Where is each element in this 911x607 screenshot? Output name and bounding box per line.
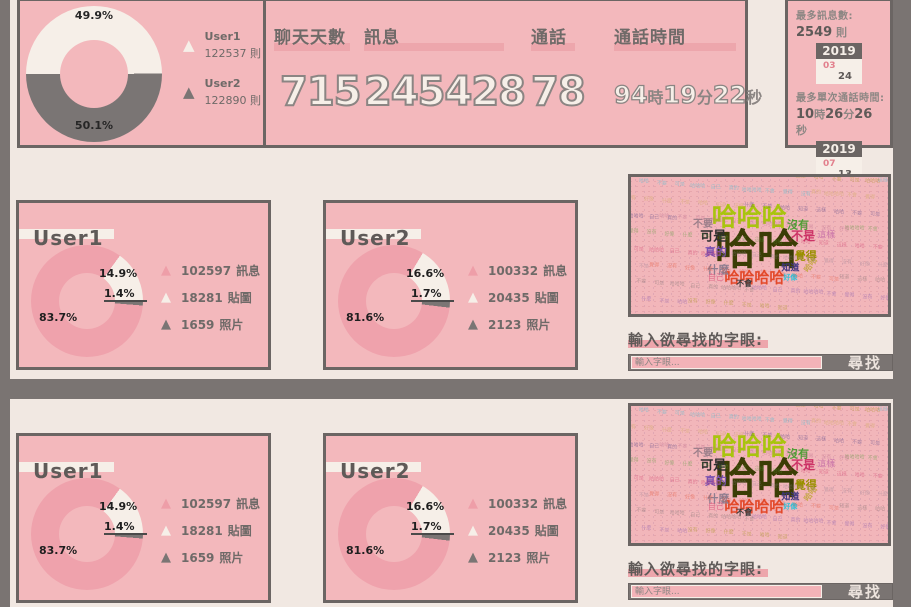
pink-triangle-icon: ▲ [161, 264, 171, 277]
legend-item-photos: ▲ 1659 照片 [161, 311, 260, 338]
gray-triangle-icon: ▲ [468, 318, 478, 331]
user1-card-title: User1 [33, 226, 104, 250]
gray-triangle-icon: ▲ [183, 85, 195, 100]
overall-messages-donut-chart: 49.9% 50.1% [26, 6, 162, 142]
max-messages-date-calendar: 2019 03 24 [816, 43, 862, 84]
search-input[interactable] [631, 585, 822, 598]
user1-photo-percent: 1.4% [104, 520, 147, 535]
user2-photo-percent: 1.7% [411, 287, 454, 302]
user2-photo-percent: 1.7% [411, 520, 454, 535]
user1-legend: ▲ 102597 訊息 ▲ 18281 貼圖 ▲ 1659 照片 [161, 257, 260, 338]
legend-item-photos: ▲ 2123 照片 [468, 544, 567, 571]
wordcloud-panel: 哈哈哈哈哈哈哈哈哈沒有不是這樣可是真的覺得什麼知道不要自己不會好像哈哈哈哈哈哈哈… [628, 174, 891, 317]
pink-triangle-icon: ▲ [161, 497, 171, 510]
max-messages-label: 最多訊息數: [796, 7, 882, 22]
gray-triangle-icon: ▲ [161, 318, 171, 331]
user1-legend: ▲ 102597 訊息 ▲ 18281 貼圖 ▲ 1659 照片 [161, 490, 260, 571]
legend-item-messages: ▲ 102597 訊息 [161, 490, 260, 517]
max-call-label: 最多單次通話時間: [796, 89, 882, 104]
legend-item-stickers: ▲ 18281 貼圖 [161, 284, 260, 311]
legend-item-messages: ▲ 100332 訊息 [468, 257, 567, 284]
cream-triangle-icon: ▲ [468, 291, 478, 304]
search-bar: 尋找 [628, 583, 893, 600]
user1-share-percent: 49.9% [75, 9, 113, 22]
search-bar: 尋找 [628, 354, 893, 371]
search-label-row: 輸入欲尋找的字眼: [628, 558, 893, 578]
wordcloud-column: 哈哈哈哈哈哈哈哈哈沒有不是這樣可是真的覺得什麼知道不要自己不會好像哈哈哈哈哈哈哈… [628, 174, 893, 371]
user2-legend: ▲ 100332 訊息 ▲ 20435 貼圖 ▲ 2123 照片 [468, 257, 567, 338]
gray-triangle-icon: ▲ [468, 551, 478, 564]
user2-card-title: User2 [340, 226, 411, 250]
summary-panel: 49.9% 50.1% ▲ User1 122537 則 ▲ User2 122… [17, 0, 748, 148]
user1-photo-percent: 1.4% [104, 287, 147, 302]
cream-triangle-icon: ▲ [161, 291, 171, 304]
dashboard-view-top: 49.9% 50.1% ▲ User1 122537 則 ▲ User2 122… [10, 0, 893, 379]
calendar-year: 2019 [816, 141, 862, 157]
legend-item-stickers: ▲ 20435 貼圖 [468, 517, 567, 544]
legend-item-photos: ▲ 2123 照片 [468, 311, 567, 338]
user2-legend: ▲ 100332 訊息 ▲ 20435 貼圖 ▲ 2123 照片 [468, 490, 567, 571]
stat-chat-days: 聊天天數 715 [274, 23, 346, 48]
legend-item-stickers: ▲ 20435 貼圖 [468, 284, 567, 311]
user2-card-title: User2 [340, 459, 411, 483]
user1-card: User1 14.9% 1.4% 83.7% ▲ 102597 訊息 ▲ 182… [16, 200, 271, 370]
legend-item-photos: ▲ 1659 照片 [161, 544, 260, 571]
legend-item-messages: ▲ 102597 訊息 [161, 257, 260, 284]
cream-triangle-icon: ▲ [183, 38, 195, 53]
user2-message-percent: 81.6% [346, 544, 384, 557]
overall-legend: ▲ User1 122537 則 ▲ User2 122890 則 [183, 29, 261, 123]
user2-sticker-percent: 16.6% [406, 267, 444, 280]
search-input[interactable] [631, 356, 822, 369]
chat-analytics-dashboard: 49.9% 50.1% ▲ User1 122537 則 ▲ User2 122… [0, 0, 911, 607]
wordcloud-column: 哈哈哈哈哈哈哈哈哈沒有不是這樣可是真的覺得什麼知道不要自己不會好像哈哈哈哈哈哈哈… [628, 403, 893, 600]
cream-triangle-icon: ▲ [468, 524, 478, 537]
search-label: 輸入欲尋找的字眼: [628, 331, 763, 349]
user1-sticker-percent: 14.9% [99, 267, 137, 280]
dashboard-view-bottom: User1 14.9% 1.4% 83.7% ▲ 102597 訊息 ▲ 182… [10, 399, 893, 607]
wordcloud-panel: 哈哈哈哈哈哈哈哈哈沒有不是這樣可是真的覺得什麼知道不要自己不會好像哈哈哈哈哈哈哈… [628, 403, 891, 546]
stat-call-time: 通話時間 94時19分22秒 [614, 23, 686, 48]
max-messages-value: 2549 則 [796, 24, 882, 40]
calendar-month: 07 [816, 159, 862, 169]
search-label: 輸入欲尋找的字眼: [628, 560, 763, 578]
search-button[interactable]: 尋找 [848, 352, 882, 373]
legend-item-messages: ▲ 100332 訊息 [468, 490, 567, 517]
stat-messages: 訊息 245428 [364, 23, 400, 48]
calendar-year: 2019 [816, 43, 862, 59]
cream-triangle-icon: ▲ [161, 524, 171, 537]
user1-message-percent: 83.7% [39, 544, 77, 557]
pink-triangle-icon: ▲ [468, 497, 478, 510]
legend-item-user1: ▲ User1 122537 則 [183, 29, 261, 62]
calendar-day: 24 [816, 71, 862, 82]
legend-item-stickers: ▲ 18281 貼圖 [161, 517, 260, 544]
gray-triangle-icon: ▲ [161, 551, 171, 564]
user1-card-title: User1 [33, 459, 104, 483]
stat-calls: 通話 78 [531, 23, 567, 48]
stats-area: 聊天天數 715 訊息 245428 通話 78 通話時間 94時19分22秒 [266, 1, 745, 145]
user1-card: User1 14.9% 1.4% 83.7% ▲ 102597 訊息 ▲ 182… [16, 433, 271, 603]
search-label-row: 輸入欲尋找的字眼: [628, 329, 893, 349]
user1-message-percent: 83.7% [39, 311, 77, 324]
user2-card: User2 16.6% 1.7% 81.6% ▲ 100332 訊息 ▲ 204… [323, 200, 578, 370]
user2-card: User2 16.6% 1.7% 81.6% ▲ 100332 訊息 ▲ 204… [323, 433, 578, 603]
max-call-value: 10時26分26秒 [796, 106, 882, 138]
calendar-month: 03 [816, 61, 862, 71]
records-panel: 最多訊息數: 2549 則 2019 03 24 最多單次通話時間: 10時26… [785, 0, 893, 148]
pink-triangle-icon: ▲ [468, 264, 478, 277]
user2-message-percent: 81.6% [346, 311, 384, 324]
user1-sticker-percent: 14.9% [99, 500, 137, 513]
user2-share-percent: 50.1% [75, 119, 113, 132]
search-button[interactable]: 尋找 [848, 581, 882, 602]
legend-item-user2: ▲ User2 122890 則 [183, 76, 261, 109]
user2-sticker-percent: 16.6% [406, 500, 444, 513]
